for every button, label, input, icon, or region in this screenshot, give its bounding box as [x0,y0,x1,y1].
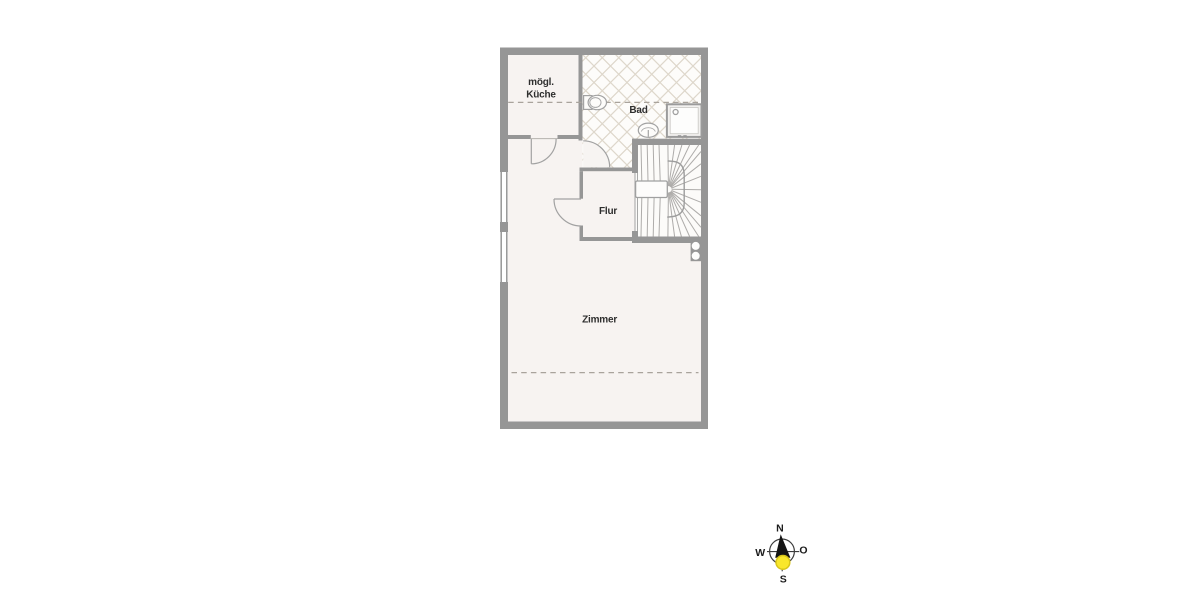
svg-text:S: S [780,573,787,585]
svg-text:O: O [799,545,807,557]
svg-text:Zimmer: Zimmer [582,314,617,325]
svg-text:Flur: Flur [599,206,617,217]
svg-text:W: W [755,547,765,559]
svg-text:mögl.: mögl. [528,77,554,88]
svg-text:N: N [776,522,784,534]
svg-text:Bad: Bad [629,105,647,116]
svg-text:Küche: Küche [526,89,556,100]
